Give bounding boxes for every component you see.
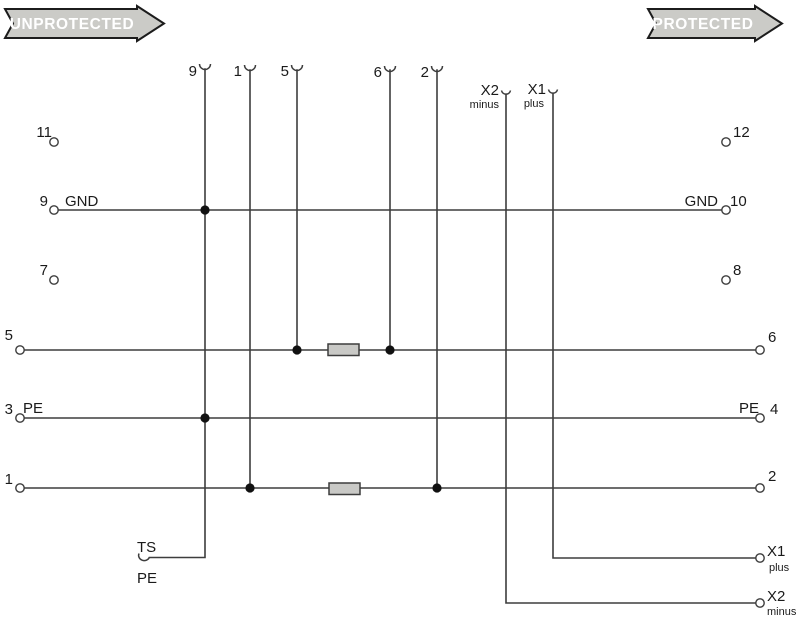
- resistor-component: [328, 344, 359, 356]
- terminal-circle-right-12: [722, 138, 730, 146]
- bottom-terminal-label-ts: TS: [137, 539, 156, 556]
- banner-protected: PROTECTED: [648, 6, 782, 41]
- terminal-circle-right-8: [722, 276, 730, 284]
- left-terminal-label-1: 1: [5, 471, 13, 488]
- top-terminal-label-2: 2: [421, 64, 429, 81]
- terminal-circle-right-6: [756, 346, 764, 354]
- junction-dot: [432, 483, 441, 492]
- right-signal-label-pe: PE: [739, 400, 759, 417]
- top-terminal-label-9: 9: [189, 63, 197, 80]
- terminal-circle-left-5: [16, 346, 24, 354]
- top-terminal-label-5: 5: [281, 63, 289, 80]
- right-terminal-label-10: 10: [730, 193, 747, 210]
- right-terminal-label-12: 12: [733, 124, 750, 141]
- fork-connector-icon: [502, 91, 511, 95]
- resistor-component: [329, 483, 360, 495]
- right-signal-label-gnd: GND: [685, 193, 719, 210]
- junction-dot: [200, 413, 209, 422]
- right-terminal-label-6: 6: [768, 329, 776, 346]
- right-terminal-label-2: 2: [768, 468, 776, 485]
- top-terminal-sublabel-x2: minus: [470, 99, 500, 111]
- terminal-circle-left-1: [16, 484, 24, 492]
- terminal-circle-right-x1: [756, 554, 764, 562]
- right-terminal-label-x1: X1: [767, 543, 785, 560]
- top-terminal-label-x1: X1: [528, 81, 546, 98]
- junction-dot: [200, 205, 209, 214]
- wiring-diagram: UNPROTECTED PROTECTED: [0, 0, 800, 622]
- banner-protected-label: PROTECTED: [653, 16, 754, 33]
- junction-dot: [385, 345, 394, 354]
- left-terminal-label-3: 3: [5, 401, 13, 418]
- junction-dot: [245, 483, 254, 492]
- junction-dot: [292, 345, 301, 354]
- terminal-circle-left-7: [50, 276, 58, 284]
- bottom-terminal-label-pe: PE: [137, 570, 157, 587]
- terminal-circle-left-9: [50, 206, 58, 214]
- terminal-circle-right-x2: [756, 599, 764, 607]
- top-terminal-label-6: 6: [374, 64, 382, 81]
- right-terminal-label-8: 8: [733, 262, 741, 279]
- right-terminal-label-x2: X2: [767, 588, 785, 605]
- left-terminal-label-9: 9: [40, 193, 48, 210]
- diagram-canvas: UNPROTECTED PROTECTED: [0, 0, 800, 622]
- top-terminal-label-x2: X2: [481, 82, 499, 99]
- wire-x2-minus: [506, 95, 756, 603]
- left-terminal-label-5: 5: [5, 327, 13, 344]
- terminal-circle-right-10: [722, 206, 730, 214]
- banner-unprotected: UNPROTECTED: [5, 6, 164, 41]
- left-terminal-label-7: 7: [40, 262, 48, 279]
- right-terminal-sublabel-x1: plus: [769, 562, 790, 574]
- terminal-circle-right-2: [756, 484, 764, 492]
- wire-top9-to-ts: [150, 69, 206, 558]
- banner-unprotected-label: UNPROTECTED: [10, 16, 135, 33]
- right-terminal-label-4: 4: [770, 401, 778, 418]
- left-terminal-label-11: 11: [36, 124, 52, 141]
- top-terminal-label-1: 1: [234, 63, 242, 80]
- fork-connector-icon: [549, 90, 558, 94]
- left-signal-label-pe: PE: [23, 400, 43, 417]
- top-terminal-sublabel-x1: plus: [524, 98, 545, 110]
- left-signal-label-gnd: GND: [65, 193, 99, 210]
- right-terminal-sublabel-x2: minus: [767, 606, 797, 618]
